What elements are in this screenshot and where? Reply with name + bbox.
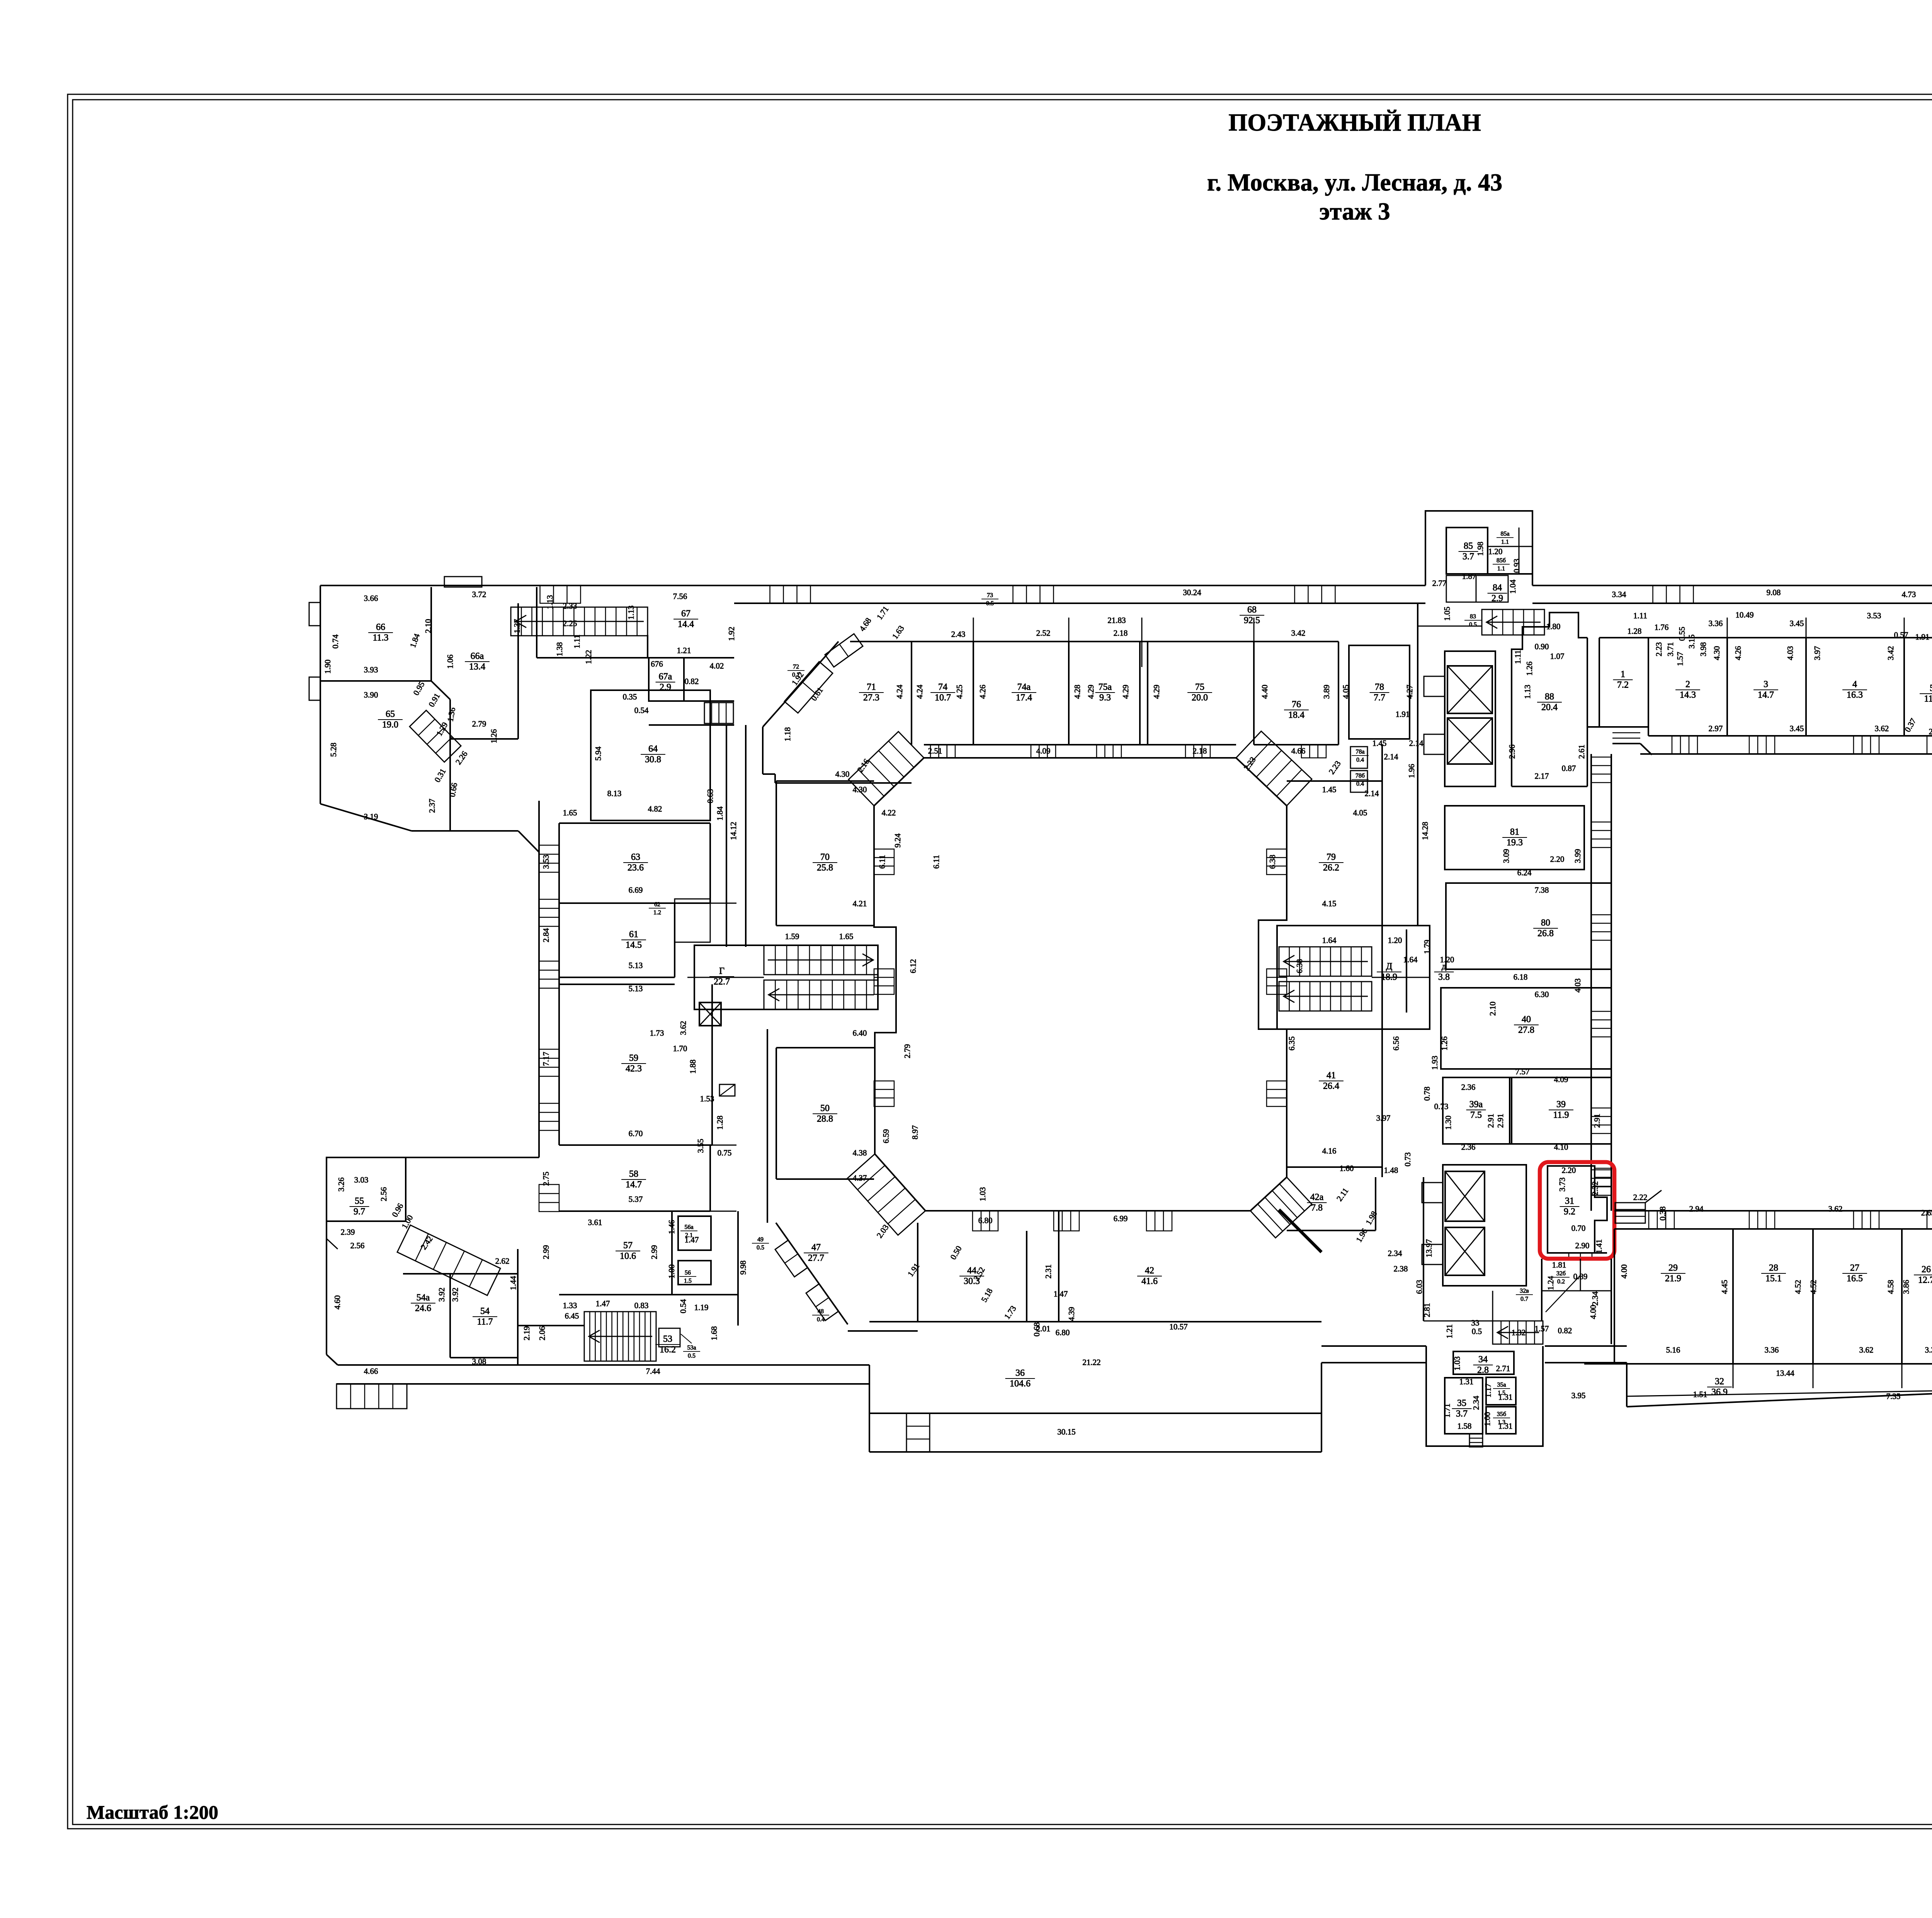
svg-text:1.98: 1.98 [1476, 542, 1485, 556]
svg-text:2.80: 2.80 [1929, 727, 1932, 736]
svg-text:6.03: 6.03 [1415, 1280, 1424, 1294]
svg-text:0.70: 0.70 [1571, 1224, 1586, 1233]
svg-text:4.60: 4.60 [333, 1295, 342, 1310]
svg-text:3.45: 3.45 [1790, 619, 1804, 628]
svg-text:81: 81 [1510, 827, 1519, 837]
svg-text:0.5: 0.5 [986, 600, 994, 607]
svg-text:1.59: 1.59 [785, 932, 799, 941]
svg-text:2.26: 2.26 [454, 749, 469, 766]
svg-text:4.09: 4.09 [1554, 1075, 1568, 1084]
svg-text:36.9: 36.9 [1711, 1387, 1728, 1397]
svg-text:53: 53 [663, 1334, 672, 1344]
svg-text:2.31: 2.31 [1044, 1264, 1053, 1279]
svg-text:2.06: 2.06 [537, 1326, 547, 1341]
svg-text:4.30: 4.30 [1712, 646, 1721, 660]
svg-text:Г: Г [719, 966, 724, 976]
svg-text:1.13: 1.13 [1523, 685, 1532, 699]
svg-text:1.76: 1.76 [1655, 623, 1669, 632]
svg-text:7.2: 7.2 [1617, 680, 1629, 690]
svg-text:1.00: 1.00 [667, 1264, 676, 1279]
svg-text:2.9: 2.9 [660, 682, 671, 692]
svg-text:2.8: 2.8 [1477, 1365, 1489, 1375]
svg-text:3.15: 3.15 [1687, 635, 1696, 649]
svg-text:3.61: 3.61 [588, 1218, 602, 1227]
svg-text:2.10: 2.10 [423, 619, 433, 633]
svg-text:3.26: 3.26 [337, 1178, 346, 1192]
svg-text:6.11: 6.11 [878, 855, 887, 869]
svg-text:0.82: 0.82 [1558, 1326, 1572, 1335]
svg-text:0.57: 0.57 [1894, 630, 1908, 640]
svg-text:4.21: 4.21 [853, 899, 867, 908]
svg-text:1.70: 1.70 [673, 1044, 687, 1053]
svg-text:4.45: 4.45 [1720, 1280, 1729, 1294]
svg-text:1.20: 1.20 [1488, 547, 1503, 556]
svg-text:3.45: 3.45 [1790, 724, 1804, 733]
svg-text:3.36: 3.36 [1709, 619, 1723, 628]
svg-text:1.41: 1.41 [1594, 1239, 1604, 1254]
svg-text:2.51: 2.51 [928, 746, 942, 756]
svg-text:4.05: 4.05 [1353, 808, 1367, 817]
svg-text:6.70: 6.70 [629, 1129, 643, 1138]
svg-text:15.1: 15.1 [1765, 1273, 1782, 1283]
svg-text:1.44: 1.44 [509, 1276, 518, 1290]
svg-text:4.73: 4.73 [1902, 590, 1916, 599]
svg-text:13.44: 13.44 [1776, 1368, 1794, 1378]
svg-text:27: 27 [1850, 1263, 1859, 1273]
svg-text:2.36: 2.36 [1461, 1142, 1476, 1152]
svg-text:71: 71 [867, 682, 876, 692]
svg-text:1.73: 1.73 [1002, 1304, 1018, 1321]
svg-text:85: 85 [1464, 541, 1473, 551]
svg-text:21.22: 21.22 [1082, 1358, 1100, 1367]
svg-text:1.13: 1.13 [626, 606, 636, 620]
svg-text:66: 66 [376, 622, 385, 632]
svg-text:58: 58 [629, 1169, 638, 1179]
svg-text:0.95: 0.95 [411, 680, 426, 697]
svg-text:50: 50 [820, 1103, 830, 1113]
svg-text:4.68: 4.68 [857, 616, 873, 633]
svg-text:1.17: 1.17 [1483, 1384, 1493, 1398]
svg-text:1.73: 1.73 [650, 1028, 664, 1038]
svg-text:2.91: 2.91 [1592, 1114, 1602, 1128]
svg-text:16.3: 16.3 [1847, 690, 1863, 700]
svg-text:4.52: 4.52 [1809, 1280, 1818, 1294]
svg-text:3.09: 3.09 [1502, 849, 1511, 863]
svg-text:5.18: 5.18 [979, 1287, 994, 1304]
svg-text:3.08: 3.08 [472, 1357, 486, 1366]
svg-text:0.7: 0.7 [1520, 1296, 1528, 1302]
svg-text:1.57: 1.57 [1535, 1324, 1549, 1333]
svg-text:74: 74 [938, 682, 947, 692]
svg-text:1.13: 1.13 [545, 595, 554, 609]
svg-text:3.8: 3.8 [1438, 972, 1450, 982]
svg-text:40: 40 [1522, 1014, 1531, 1025]
svg-text:14.3: 14.3 [1680, 690, 1696, 700]
svg-text:42: 42 [1145, 1266, 1154, 1276]
svg-text:1.68: 1.68 [709, 1326, 719, 1341]
svg-text:1.47: 1.47 [1054, 1289, 1068, 1299]
svg-text:54а: 54а [417, 1293, 430, 1303]
svg-text:22.7: 22.7 [714, 977, 730, 987]
svg-text:26.4: 26.4 [1323, 1081, 1339, 1091]
svg-text:88: 88 [1545, 692, 1554, 702]
svg-text:3.92: 3.92 [451, 1288, 460, 1302]
svg-text:2.03: 2.03 [875, 1223, 891, 1240]
svg-text:1.22: 1.22 [584, 650, 593, 664]
svg-text:33: 33 [1471, 1318, 1480, 1327]
svg-text:2.14: 2.14 [1384, 752, 1398, 761]
svg-text:2.14: 2.14 [1365, 789, 1379, 798]
svg-text:16.2: 16.2 [660, 1344, 676, 1355]
svg-text:4.37: 4.37 [853, 1173, 867, 1183]
svg-text:1.92: 1.92 [727, 627, 736, 641]
svg-text:14.4: 14.4 [678, 619, 694, 629]
svg-text:3.92: 3.92 [437, 1288, 446, 1302]
svg-text:63: 63 [631, 852, 640, 862]
svg-text:0.89: 0.89 [1573, 1272, 1588, 1281]
svg-text:9.2: 9.2 [1564, 1207, 1575, 1217]
svg-text:34: 34 [1478, 1355, 1488, 1365]
svg-text:0.87: 0.87 [1562, 764, 1576, 773]
svg-text:1.1: 1.1 [1501, 539, 1509, 545]
svg-text:79: 79 [1327, 852, 1336, 862]
svg-text:20.4: 20.4 [1541, 702, 1558, 712]
svg-text:14.12: 14.12 [729, 822, 738, 840]
svg-text:26: 26 [1922, 1264, 1931, 1275]
svg-text:1.46: 1.46 [667, 1220, 676, 1234]
svg-text:4.24: 4.24 [915, 684, 924, 699]
svg-text:2.71: 2.71 [1496, 1364, 1510, 1373]
svg-text:104.6: 104.6 [1010, 1379, 1031, 1389]
svg-text:0.73: 0.73 [1434, 1102, 1449, 1111]
svg-text:41.6: 41.6 [1141, 1276, 1158, 1286]
svg-text:0.83: 0.83 [634, 1301, 649, 1310]
svg-text:49: 49 [757, 1236, 764, 1243]
svg-text:11.9: 11.9 [1924, 694, 1932, 704]
svg-text:0.78: 0.78 [1422, 1087, 1432, 1101]
svg-text:24.6: 24.6 [415, 1303, 431, 1313]
svg-text:3.73: 3.73 [1558, 1178, 1567, 1192]
svg-text:2.79: 2.79 [903, 1044, 912, 1059]
svg-text:73: 73 [987, 592, 993, 599]
svg-text:11.3: 11.3 [372, 633, 388, 643]
svg-text:48: 48 [818, 1308, 824, 1315]
svg-text:4.26: 4.26 [978, 685, 987, 699]
svg-text:19.3: 19.3 [1507, 837, 1523, 848]
svg-text:83: 83 [1470, 613, 1476, 620]
svg-text:61: 61 [629, 929, 638, 939]
svg-text:2.90: 2.90 [1575, 1241, 1590, 1250]
svg-text:0.5: 0.5 [757, 1244, 764, 1251]
svg-text:4.05: 4.05 [1341, 685, 1350, 699]
svg-text:4.00: 4.00 [1619, 1264, 1629, 1279]
svg-text:9.98: 9.98 [738, 1261, 748, 1275]
svg-text:6.59: 6.59 [881, 1129, 891, 1144]
svg-text:0.50: 0.50 [948, 1244, 963, 1261]
svg-text:0.66: 0.66 [447, 782, 459, 798]
svg-text:6.99: 6.99 [1114, 1214, 1128, 1223]
svg-text:1.11: 1.11 [1513, 650, 1522, 664]
svg-text:4.24: 4.24 [895, 684, 904, 699]
svg-text:6.69: 6.69 [629, 885, 643, 895]
svg-text:9.7: 9.7 [354, 1207, 365, 1217]
svg-text:1.53: 1.53 [700, 1094, 714, 1103]
svg-text:1.32: 1.32 [1512, 1328, 1526, 1337]
svg-text:4.29: 4.29 [1152, 685, 1161, 699]
svg-text:2.23: 2.23 [1327, 759, 1343, 776]
svg-text:55: 55 [355, 1196, 364, 1206]
svg-text:1.91: 1.91 [1396, 710, 1410, 719]
svg-text:5.37: 5.37 [629, 1195, 643, 1204]
svg-text:0.4: 0.4 [1356, 757, 1364, 763]
svg-text:11.7: 11.7 [477, 1317, 493, 1327]
svg-text:35а: 35а [1497, 1382, 1506, 1388]
svg-text:3.66: 3.66 [364, 594, 378, 603]
svg-text:1.03: 1.03 [1452, 1356, 1462, 1371]
svg-text:1.06: 1.06 [446, 655, 455, 669]
svg-text:7.17: 7.17 [541, 1052, 551, 1066]
svg-text:4.25: 4.25 [955, 685, 964, 699]
svg-text:32: 32 [1715, 1377, 1724, 1387]
svg-text:35б: 35б [1497, 1411, 1506, 1418]
svg-text:6.38: 6.38 [1295, 959, 1304, 973]
svg-text:26.2: 26.2 [1323, 863, 1339, 873]
svg-text:1.11: 1.11 [572, 635, 582, 648]
svg-text:14.7: 14.7 [1758, 690, 1774, 700]
svg-text:7.5: 7.5 [1470, 1110, 1482, 1120]
svg-text:28.8: 28.8 [817, 1114, 833, 1124]
svg-text:0.5: 0.5 [1472, 1327, 1482, 1336]
svg-text:4.40: 4.40 [1260, 685, 1269, 699]
svg-text:35: 35 [1457, 1398, 1466, 1408]
svg-text:7.38: 7.38 [1535, 885, 1549, 895]
svg-text:11.9: 11.9 [1553, 1110, 1569, 1120]
svg-text:85а: 85а [1500, 531, 1509, 537]
svg-text:1.84: 1.84 [408, 632, 422, 649]
svg-text:3.86: 3.86 [1901, 1280, 1911, 1294]
svg-text:1.45: 1.45 [1372, 739, 1387, 748]
svg-text:1.00: 1.00 [1483, 1412, 1492, 1426]
svg-text:3.55: 3.55 [696, 1139, 705, 1153]
svg-text:1.47: 1.47 [596, 1299, 610, 1308]
svg-text:1.81: 1.81 [1552, 1260, 1566, 1270]
svg-text:2.65: 2.65 [1921, 1208, 1932, 1217]
svg-text:5.28: 5.28 [329, 743, 338, 757]
svg-text:1.87: 1.87 [1462, 572, 1476, 581]
svg-text:1.31: 1.31 [1498, 1421, 1513, 1431]
svg-text:1.04: 1.04 [1508, 579, 1517, 594]
svg-text:1.96: 1.96 [1354, 1227, 1369, 1244]
svg-text:53а: 53а [687, 1344, 696, 1351]
svg-text:4.52: 4.52 [1793, 1280, 1803, 1294]
svg-text:3: 3 [1764, 679, 1768, 689]
svg-text:0.54: 0.54 [679, 1299, 688, 1313]
svg-text:1.20: 1.20 [1440, 955, 1454, 964]
svg-text:3.97: 3.97 [1376, 1113, 1391, 1123]
svg-text:3.53: 3.53 [1867, 611, 1881, 620]
svg-text:1.91: 1.91 [1915, 632, 1930, 642]
svg-text:9.3: 9.3 [1099, 693, 1111, 703]
svg-text:76: 76 [1292, 699, 1301, 710]
svg-text:2.62: 2.62 [495, 1256, 510, 1266]
svg-text:27.8: 27.8 [1518, 1025, 1534, 1035]
svg-text:5: 5 [1930, 683, 1932, 693]
svg-text:1.51: 1.51 [1693, 1390, 1708, 1399]
svg-text:17.4: 17.4 [1016, 693, 1032, 703]
svg-text:1.88: 1.88 [688, 1060, 697, 1074]
svg-text:1.38: 1.38 [555, 642, 564, 657]
svg-text:1.64: 1.64 [1403, 955, 1418, 964]
svg-text:3.7: 3.7 [1456, 1409, 1468, 1419]
svg-text:4.16: 4.16 [1322, 1146, 1337, 1156]
svg-text:14.7: 14.7 [626, 1179, 642, 1190]
svg-text:1: 1 [1621, 669, 1625, 679]
svg-text:27.7: 27.7 [808, 1253, 824, 1263]
svg-text:6.35: 6.35 [1287, 1036, 1296, 1051]
svg-text:4.09: 4.09 [1036, 746, 1051, 756]
svg-text:2.20: 2.20 [1562, 1166, 1576, 1175]
svg-text:1.58: 1.58 [1458, 1421, 1472, 1431]
svg-text:10.6: 10.6 [620, 1251, 636, 1261]
svg-text:3.53: 3.53 [541, 855, 551, 869]
svg-text:75: 75 [1195, 682, 1204, 692]
svg-text:3.42: 3.42 [1886, 646, 1895, 660]
svg-text:42.3: 42.3 [626, 1064, 642, 1074]
svg-text:8.13: 8.13 [607, 789, 622, 798]
svg-text:0.75: 0.75 [718, 1148, 732, 1157]
svg-text:4.66: 4.66 [1291, 746, 1306, 756]
svg-text:1.20: 1.20 [1388, 936, 1402, 945]
svg-text:2.32: 2.32 [1590, 1181, 1600, 1196]
svg-text:1.19: 1.19 [694, 1303, 709, 1312]
svg-text:3.34: 3.34 [1612, 590, 1626, 599]
svg-text:3.62: 3.62 [1875, 724, 1889, 733]
svg-text:84: 84 [1493, 583, 1502, 593]
svg-text:9.08: 9.08 [1767, 588, 1781, 597]
svg-text:1.18: 1.18 [783, 727, 792, 742]
svg-text:30.8: 30.8 [645, 754, 661, 764]
svg-text:4.22: 4.22 [882, 808, 896, 817]
svg-text:1.26: 1.26 [1525, 662, 1534, 676]
svg-text:4.66: 4.66 [364, 1367, 378, 1376]
svg-text:1.60: 1.60 [1340, 1164, 1354, 1173]
svg-text:3.72: 3.72 [472, 590, 486, 599]
svg-text:2: 2 [1685, 679, 1690, 689]
svg-text:3.19: 3.19 [364, 812, 378, 821]
svg-text:80: 80 [1541, 918, 1550, 928]
svg-text:1.07: 1.07 [1550, 652, 1565, 661]
svg-text:78а: 78а [1355, 749, 1364, 755]
svg-text:4.30: 4.30 [853, 785, 867, 794]
svg-text:1.63: 1.63 [890, 624, 906, 641]
svg-text:1.28: 1.28 [1628, 626, 1642, 636]
svg-text:2.18: 2.18 [1114, 628, 1128, 638]
svg-text:0.54: 0.54 [634, 706, 649, 715]
svg-text:74а: 74а [1017, 682, 1031, 692]
svg-text:2.34: 2.34 [1590, 1291, 1600, 1305]
svg-text:14.5: 14.5 [626, 940, 642, 950]
svg-text:21.83: 21.83 [1107, 616, 1126, 625]
svg-text:1.48: 1.48 [1384, 1166, 1398, 1175]
svg-text:18.4: 18.4 [1288, 710, 1304, 720]
svg-text:0.90: 0.90 [1535, 642, 1549, 651]
svg-text:2.52: 2.52 [1036, 628, 1051, 638]
svg-text:6.80: 6.80 [978, 1216, 993, 1225]
svg-text:3.7: 3.7 [1463, 551, 1474, 562]
svg-text:26.8: 26.8 [1537, 928, 1554, 938]
svg-text:1.65: 1.65 [563, 808, 577, 817]
svg-text:4.58: 4.58 [1886, 1280, 1895, 1294]
svg-text:6.45: 6.45 [565, 1311, 579, 1321]
svg-text:0.91: 0.91 [427, 692, 442, 709]
svg-text:1.31: 1.31 [1498, 1392, 1513, 1402]
svg-text:2.81: 2.81 [1422, 1303, 1432, 1317]
svg-text:ПОЭТАЖНЫЙ ПЛАН: ПОЭТАЖНЫЙ ПЛАН [1228, 109, 1481, 136]
svg-text:2.91: 2.91 [1496, 1114, 1505, 1128]
svg-text:1.05: 1.05 [1442, 607, 1452, 621]
svg-text:25.8: 25.8 [817, 863, 833, 873]
svg-text:4.27: 4.27 [1405, 685, 1414, 699]
svg-text:2.75: 2.75 [541, 1172, 551, 1186]
svg-text:этаж 3: этаж 3 [1319, 198, 1390, 225]
svg-text:67: 67 [681, 609, 690, 619]
svg-text:2.43: 2.43 [951, 630, 966, 639]
svg-text:1.57: 1.57 [1675, 652, 1685, 666]
svg-text:1.03: 1.03 [978, 1187, 987, 1202]
svg-text:1.96: 1.96 [1407, 764, 1416, 778]
svg-text:2.84: 2.84 [541, 928, 551, 942]
svg-text:7.57: 7.57 [1515, 1067, 1530, 1076]
svg-text:59: 59 [629, 1053, 638, 1063]
svg-text:8.97: 8.97 [910, 1125, 920, 1140]
svg-text:2.25: 2.25 [563, 619, 577, 628]
svg-text:4.15: 4.15 [1322, 899, 1337, 908]
svg-text:3.03: 3.03 [354, 1175, 369, 1184]
svg-text:7.8: 7.8 [1311, 1203, 1323, 1213]
svg-text:2.38: 2.38 [1394, 1264, 1408, 1273]
svg-text:39: 39 [1556, 1099, 1566, 1110]
svg-text:7.44: 7.44 [646, 1367, 660, 1376]
svg-text:66а: 66а [471, 651, 484, 661]
svg-text:2.33: 2.33 [563, 601, 577, 611]
svg-text:10.7: 10.7 [935, 693, 951, 703]
svg-text:4.00: 4.00 [1588, 1305, 1598, 1319]
svg-text:4.82: 4.82 [648, 804, 662, 813]
svg-text:1.45: 1.45 [1322, 785, 1337, 794]
svg-text:1.5: 1.5 [684, 1278, 692, 1284]
svg-text:0.73: 0.73 [1403, 1152, 1412, 1167]
svg-text:10.57: 10.57 [1169, 1322, 1187, 1331]
svg-text:4.03: 4.03 [1786, 646, 1795, 660]
svg-text:3.62: 3.62 [679, 1021, 688, 1035]
svg-text:3.89: 3.89 [1322, 685, 1331, 699]
svg-text:4.10: 4.10 [1554, 1142, 1568, 1152]
svg-text:1.37: 1.37 [512, 619, 522, 633]
svg-text:3.62: 3.62 [1859, 1345, 1874, 1355]
svg-text:2.10: 2.10 [1488, 1002, 1497, 1016]
svg-text:1.28: 1.28 [715, 1116, 724, 1130]
svg-text:23.6: 23.6 [628, 863, 644, 873]
svg-text:1.71: 1.71 [1442, 1404, 1452, 1418]
svg-text:2.99: 2.99 [650, 1245, 659, 1259]
svg-text:16.5: 16.5 [1847, 1273, 1863, 1283]
svg-text:3.99: 3.99 [1573, 849, 1582, 863]
svg-text:2.56: 2.56 [379, 1187, 388, 1202]
svg-text:85б: 85б [1497, 557, 1506, 564]
svg-text:1.1: 1.1 [1497, 565, 1505, 572]
svg-text:3.36: 3.36 [1765, 1345, 1779, 1355]
svg-text:2.34: 2.34 [1471, 1396, 1481, 1410]
